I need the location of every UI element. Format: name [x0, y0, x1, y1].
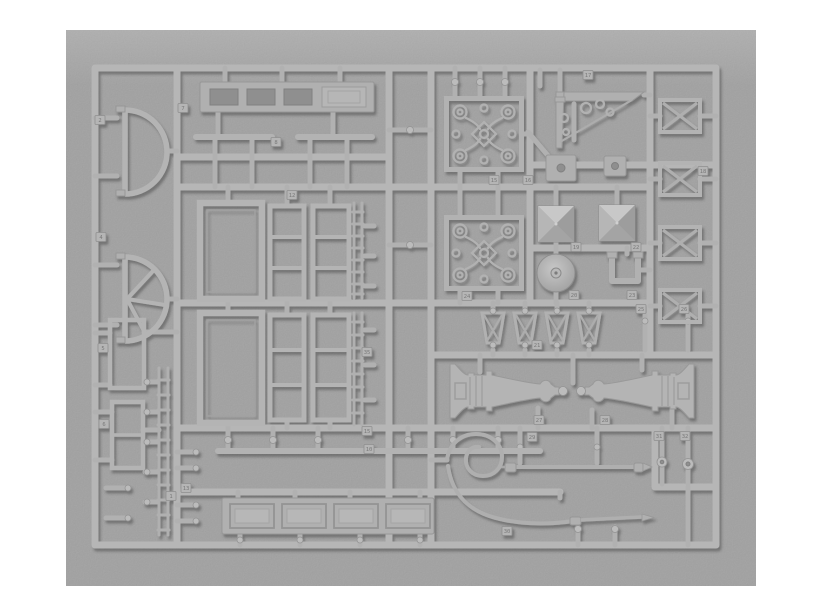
part-number-tag-window-frame-two-pane: 6 [99, 420, 109, 429]
svg-text:2: 2 [98, 118, 101, 124]
part-number-tag-u-bracket: 23 [627, 291, 637, 300]
svg-text:30: 30 [504, 529, 511, 535]
ball-pin-left [657, 457, 667, 467]
part-number-tag-ball-pin-left: 31 [654, 432, 664, 441]
svg-text:23: 23 [629, 293, 636, 299]
part-number-tag-door-frame-large: 12 [287, 191, 297, 200]
baluster-tip-right [577, 387, 586, 396]
part-number-tag-turned-baluster-left: 27 [534, 416, 544, 425]
sprue-photo-svg: 2478123556113151015161718192220232421252… [0, 0, 820, 615]
part-number-tag-fanlight-frame-plain: 2 [95, 116, 105, 125]
part-number-tag-pyramid-cap-left: 19 [571, 243, 581, 252]
svg-text:20: 20 [571, 293, 578, 299]
pyramid-cap-left [538, 206, 574, 242]
part-number-tag-pyramid-cap-right: 22 [631, 243, 641, 252]
svg-text:17: 17 [585, 73, 592, 79]
part-number-tag-window-frame-small: 5 [98, 344, 108, 353]
part-number-tag-ball-pin-right: 32 [680, 432, 690, 441]
svg-text:22: 22 [633, 245, 640, 251]
part-number-tag-turned-baluster-right: 28 [600, 416, 610, 425]
svg-text:25: 25 [638, 307, 645, 313]
plate-with-hole-a [546, 155, 576, 181]
part-number-tag-fanlight-frame-spoked: 4 [96, 233, 106, 242]
part-number-tag-grille-panel-lower: 24 [462, 292, 472, 301]
svg-text:32: 32 [682, 434, 689, 440]
panelled-plank [222, 498, 434, 534]
part-number-tag-small-peg-left: 25 [636, 305, 646, 314]
part-number-tag-grille-panel-upper: 15 [489, 176, 499, 185]
svg-text:6: 6 [102, 422, 105, 428]
part-number-tag-peg-ladder: 1 [166, 492, 176, 501]
svg-text:15: 15 [491, 178, 498, 184]
part-number-tag-small-peg-right: 26 [679, 305, 689, 314]
part-number-tag-cross-braced-frame: 18 [698, 167, 708, 176]
plate-with-hole-b [604, 156, 626, 176]
part-number-tag-corner-bracket: 17 [583, 71, 593, 80]
pyramid-cap-right [599, 205, 635, 241]
part-number-tag-round-disc: 20 [569, 291, 579, 300]
svg-text:8: 8 [274, 140, 277, 146]
svg-text:26: 26 [681, 307, 688, 313]
part-number-tag-stud-rail-bottom: 10 [364, 445, 374, 454]
part-number-tag-vent-lintel-strip: 7 [178, 104, 188, 113]
round-disc [537, 254, 575, 292]
svg-text:18: 18 [700, 169, 707, 175]
part-number-tag-grille-panel-upper: 16 [523, 176, 533, 185]
svg-text:27: 27 [536, 418, 543, 424]
part-number-tag-bullet-pegs: 13 [181, 484, 191, 493]
vent-lintel-strip [200, 82, 374, 112]
part-number-tag-ladder-strip: 35 [362, 348, 372, 357]
part-number-tag-sill-bars: 8 [271, 138, 281, 147]
svg-text:24: 24 [464, 294, 471, 300]
svg-text:13: 13 [183, 486, 190, 492]
part-number-tag-trapezoid-balusters: 21 [532, 341, 542, 350]
svg-text:10: 10 [366, 447, 373, 453]
svg-text:31: 31 [656, 434, 663, 440]
part-number-tag-straight-rod: 29 [527, 433, 537, 442]
svg-text:7: 7 [181, 106, 184, 112]
baluster-tip-left [559, 387, 568, 396]
svg-text:35: 35 [364, 350, 371, 356]
svg-text:5: 5 [101, 346, 104, 352]
ball-pin-right [683, 459, 694, 470]
svg-text:19: 19 [573, 245, 580, 251]
part-number-tag-stud-rail-top: 15 [362, 427, 372, 436]
svg-text:12: 12 [289, 193, 296, 199]
svg-text:16: 16 [525, 178, 532, 184]
photo-of-model-sprue: 2478123556113151015161718192220232421252… [0, 0, 820, 615]
svg-text:29: 29 [529, 435, 536, 441]
svg-text:21: 21 [534, 343, 541, 349]
part-number-tag-swan-neck-rod: 30 [502, 527, 512, 536]
svg-text:15: 15 [364, 429, 371, 435]
svg-text:1: 1 [169, 494, 172, 500]
svg-text:28: 28 [602, 418, 609, 424]
